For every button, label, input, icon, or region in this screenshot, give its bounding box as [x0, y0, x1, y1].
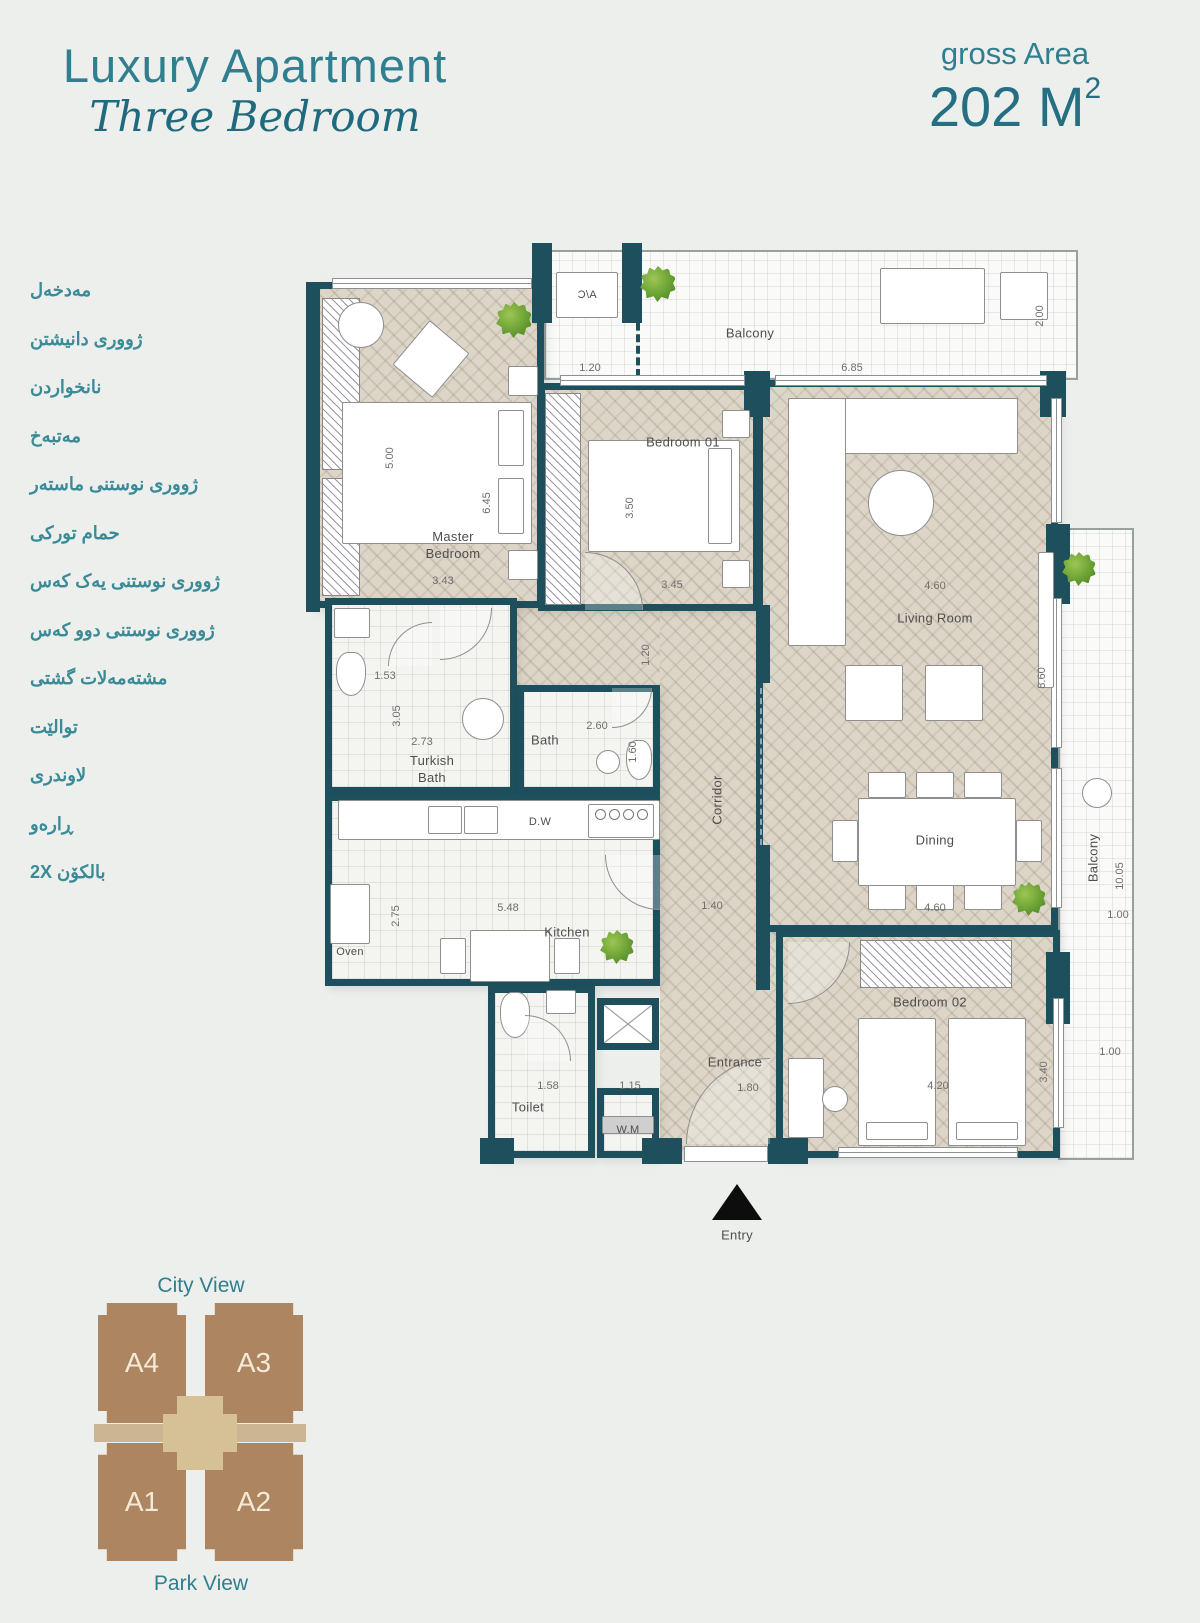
legend-item-kitchen: مەتبەخ	[30, 412, 312, 461]
kitchen-sink	[464, 806, 498, 834]
nightstand	[722, 410, 750, 438]
park-view-label: Park View	[154, 1572, 248, 1596]
dim-kitchen-width: 5.48	[497, 902, 518, 914]
oven	[330, 884, 370, 944]
pillow	[498, 410, 524, 466]
label-toilet: Toilet	[512, 1100, 544, 1115]
wall-pier	[532, 243, 552, 323]
room-legend: مەدخەل ژوورى دانیشتن نانخواردن مەتبەخ ژو…	[30, 266, 312, 897]
kitchen-table	[470, 930, 550, 982]
label-master-bedroom: Master Bedroom	[411, 529, 495, 563]
window	[332, 278, 532, 289]
dim-balcony-length: 6.85	[841, 362, 862, 374]
dim-corridor-width: 1.20	[640, 644, 652, 665]
dim-bath-depth: 1.60	[627, 741, 639, 762]
label-bedroom-01: Bedroom 01	[646, 435, 720, 450]
dim-bath-width: 2.60	[586, 720, 607, 732]
legend-item-turkish-bath: حمام توركى	[30, 509, 312, 558]
dining-chair	[1016, 820, 1042, 862]
label-dining: Dining	[916, 833, 955, 848]
dim-dining-width: 4.60	[924, 902, 945, 914]
entry-arrow	[712, 1184, 762, 1220]
gross-area-label: gross Area	[880, 36, 1150, 72]
legend-item-toilet: توالێت	[30, 703, 312, 752]
pillow	[866, 1122, 928, 1140]
page-subtitle: Three Bedroom	[40, 92, 470, 141]
legend-item-balcony: بالکۆن 2X	[30, 848, 312, 897]
dim-master-bed-len: 6.45	[481, 492, 493, 513]
label-entrance: Entrance	[708, 1055, 762, 1070]
label-corridor: Corridor	[710, 775, 725, 824]
armchair	[845, 665, 903, 721]
label-bath: Bath	[531, 733, 559, 748]
unit-a3-label: A3	[237, 1347, 271, 1379]
label-wm: W.M	[617, 1124, 640, 1136]
dining-chair	[964, 884, 1002, 910]
corridor-wall-upper	[756, 605, 770, 683]
city-view-label: City View	[157, 1274, 244, 1298]
armchair	[925, 665, 983, 721]
legend-item-single-bedroom: ژوورى نوستنى یەک کەس	[30, 557, 312, 606]
pillow	[498, 478, 524, 534]
label-kitchen: Kitchen	[544, 925, 589, 940]
wardrobe	[545, 393, 581, 605]
sink	[546, 990, 576, 1014]
legend-item-living: ژوورى دانیشتن	[30, 315, 312, 364]
dim-bedroom1-width: 3.45	[661, 579, 682, 591]
wall-pier	[480, 1138, 514, 1164]
dim-master-len: 5.00	[384, 447, 396, 468]
pillow	[956, 1122, 1018, 1140]
shaft	[597, 998, 659, 1050]
dim-bedroom2-width: 4.20	[927, 1080, 948, 1092]
dim-master-width: 3.43	[432, 575, 453, 587]
dining-chair	[964, 772, 1002, 798]
window	[560, 375, 745, 386]
side-table	[338, 302, 384, 348]
label-balcony-right: Balcony	[1086, 834, 1101, 882]
legend-item-entrance: مەدخەل	[30, 266, 312, 315]
wall-pier	[768, 1138, 808, 1164]
legend-item-amenities: مشتەمەلات گشتى	[30, 654, 312, 703]
dim-bedroom2-right: 1.00	[1099, 1046, 1120, 1058]
desk-chair	[822, 1086, 848, 1112]
window	[1053, 998, 1064, 1128]
corridor-open-boundary	[760, 688, 762, 845]
dim-corridor-bottom: 1.40	[701, 900, 722, 912]
label-entry: Entry	[721, 1228, 753, 1243]
window	[838, 1147, 1018, 1158]
balcony-chair	[1082, 778, 1112, 808]
dining-chair	[832, 820, 858, 862]
dim-bedroom2-depth: 3.40	[1038, 1061, 1050, 1082]
legend-item-dining: نانخواردن	[30, 363, 312, 412]
legend-item-double-bedroom: ژوورى نوستنى دوو کەس	[30, 606, 312, 655]
wardrobe	[860, 940, 1012, 988]
dim-wc-depth: 3.05	[391, 705, 403, 726]
stove-burners	[592, 806, 652, 823]
corridor-wall-lower	[756, 845, 770, 990]
area-superscript: 2	[1084, 72, 1101, 105]
balcony-divider-wall	[636, 253, 640, 377]
coffee-table	[868, 470, 934, 536]
unit-block-a1: A1	[98, 1443, 186, 1561]
window	[775, 375, 1047, 386]
dim-living-length: 8.60	[1036, 667, 1048, 688]
kitchen-chair	[554, 938, 580, 974]
window	[1051, 768, 1062, 908]
dim-balcony-right-width: 1.00	[1107, 909, 1128, 921]
dim-living-width: 4.60	[924, 580, 945, 592]
label-dw: D.W	[529, 816, 551, 828]
dim-wc-width: 1.53	[374, 670, 395, 682]
label-balcony-top: Balcony	[726, 326, 774, 341]
dim-balcony-right-length: 10.05	[1114, 862, 1126, 890]
unit-a2-label: A2	[237, 1486, 271, 1518]
legend-item-laundry: لاوندرى	[30, 751, 312, 800]
area-number: 202 M	[929, 75, 1085, 138]
label-ac: A/C	[577, 289, 596, 301]
ac-text: A/C	[577, 289, 596, 301]
kitchen-sink	[428, 806, 462, 834]
pillow	[708, 448, 732, 544]
sofa	[788, 398, 846, 646]
floorplan-page: Luxury Apartment Three Bedroom gross Are…	[0, 0, 1200, 1623]
core-horizontal	[163, 1414, 237, 1452]
label-oven: Oven	[336, 946, 364, 958]
unit-a1-label: A1	[125, 1486, 159, 1518]
sink	[596, 750, 620, 774]
kitchen-chair	[440, 938, 466, 974]
label-bedroom-02: Bedroom 02	[893, 995, 967, 1010]
dim-laundry-width: 1.15	[619, 1080, 640, 1092]
shower-head	[462, 698, 504, 740]
nightstand	[508, 366, 538, 396]
wall-pier	[642, 1138, 682, 1164]
nightstand	[722, 560, 750, 588]
legend-item-master-bedroom: ژوورى نوستنى ماستەر	[30, 460, 312, 509]
legend-item-corridor: ڕارەو	[30, 800, 312, 849]
dim-toilet-width: 1.58	[537, 1080, 558, 1092]
dining-chair	[868, 772, 906, 798]
gross-area-value: 202 M2	[880, 72, 1150, 139]
unit-a4-label: A4	[125, 1347, 159, 1379]
dim-bedroom1-depth: 3.50	[624, 497, 636, 518]
label-turkish-bath: Turkish Bath	[400, 753, 464, 787]
balcony-lounger	[880, 268, 985, 324]
unit-block-a4: A4	[98, 1303, 186, 1423]
window	[1051, 398, 1062, 523]
wall-pier	[306, 282, 320, 612]
dining-chair	[868, 884, 906, 910]
wc-toilet	[336, 652, 366, 696]
dim-balcony-depth: 2.00	[1034, 305, 1046, 326]
page-title: Luxury Apartment	[40, 38, 470, 93]
nightstand	[508, 550, 538, 580]
dining-chair	[916, 772, 954, 798]
dim-kitchen-depth: 2.75	[390, 905, 402, 926]
desk	[788, 1058, 824, 1138]
entry-threshold	[684, 1146, 768, 1162]
label-living-room: Living Room	[897, 611, 973, 626]
sink	[334, 608, 370, 638]
dim-balcony-section: 1.20	[579, 362, 600, 374]
dim-turkish-width: 2.73	[411, 736, 432, 748]
dim-entrance-width: 1.80	[737, 1082, 758, 1094]
